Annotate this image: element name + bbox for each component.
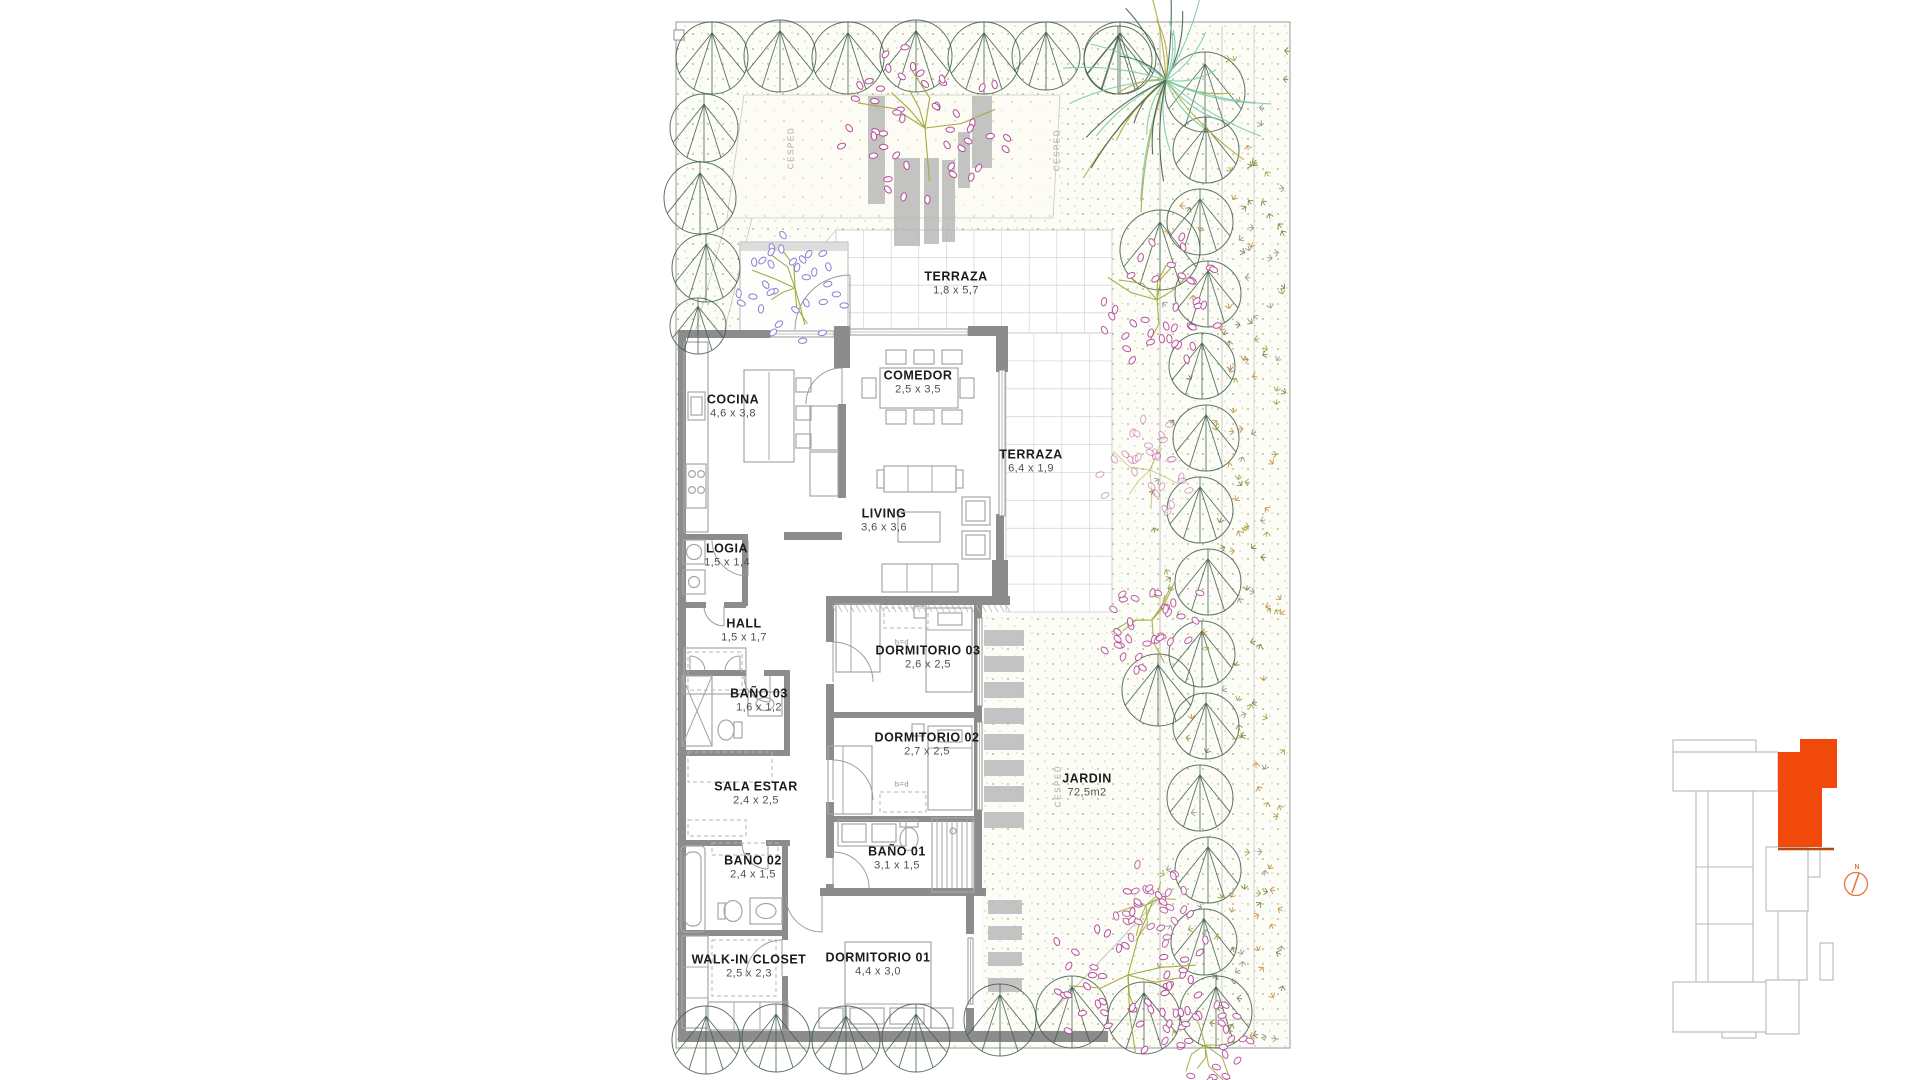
north-compass-icon: N bbox=[1845, 864, 1868, 896]
keyplan-highlighted-unit[interactable] bbox=[1778, 739, 1837, 847]
keyplan bbox=[1673, 739, 1837, 1038]
site-plan-drawing: N bbox=[0, 0, 1920, 1080]
compass-north-label: N bbox=[1854, 864, 1859, 871]
floor-plan-page: N TERRAZA1,8 x 5,7COCINA4,6 x 3,8COMEDOR… bbox=[0, 0, 1920, 1080]
